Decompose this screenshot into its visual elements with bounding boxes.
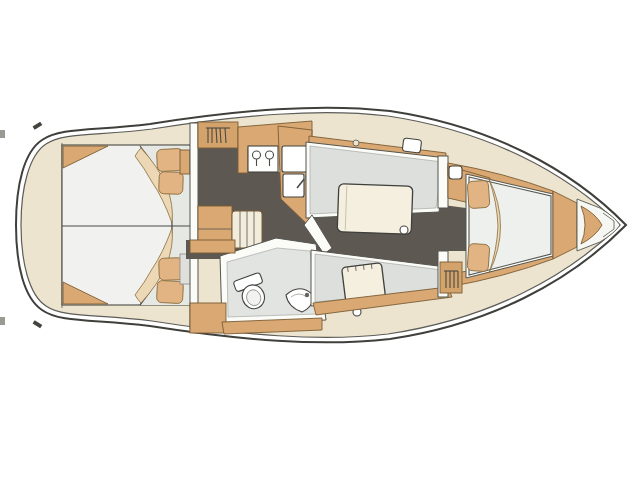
table-pedestal <box>400 226 408 234</box>
yacht-layout-diagram <box>0 0 640 480</box>
cabinet-seat <box>449 166 462 179</box>
pillow <box>467 180 490 208</box>
basin-faucet-icon <box>305 293 309 297</box>
hanging-locker-aft <box>198 122 238 148</box>
pillow <box>467 243 490 271</box>
sink-basin <box>283 174 304 197</box>
aft-cabin <box>62 145 192 305</box>
deck-hatch <box>402 138 421 153</box>
hanging-locker-forward <box>440 262 462 293</box>
aft-cabin-door-upper <box>180 150 190 174</box>
aft-bulkhead <box>190 123 198 329</box>
deck-fitting <box>353 140 359 146</box>
stove <box>248 146 278 172</box>
bench-seat <box>190 240 235 253</box>
pillow <box>159 172 184 195</box>
storage-locker <box>190 303 226 333</box>
pillow <box>156 280 183 303</box>
pillow <box>156 148 183 171</box>
berth-foot-chest <box>553 191 577 259</box>
sink-basin <box>282 146 307 172</box>
